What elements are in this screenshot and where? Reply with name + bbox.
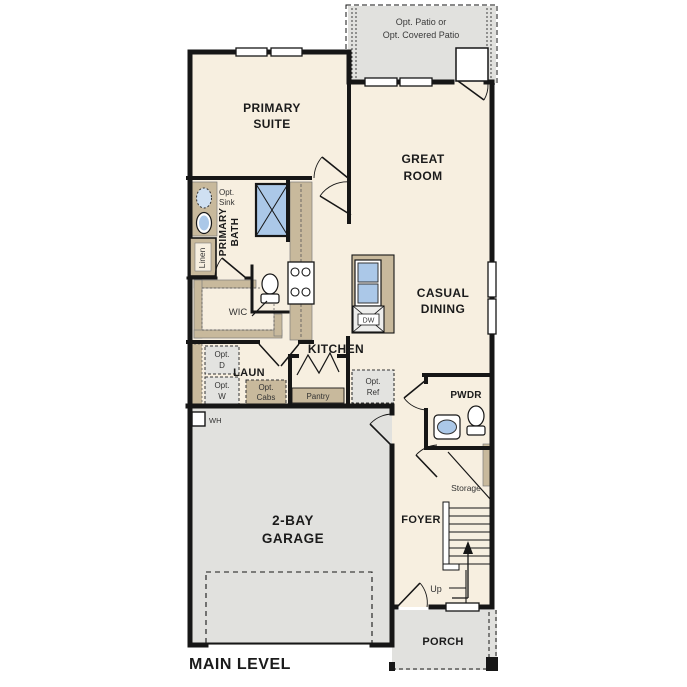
water-heater-label: WH	[209, 416, 222, 425]
window-suite-1	[236, 48, 267, 56]
opt-dryer-label-1: Opt.	[214, 350, 229, 359]
foyer-label: FOYER	[401, 514, 440, 526]
window-greatroom-2	[400, 78, 432, 86]
bath-toilet-bowl	[262, 274, 278, 294]
casual-dining-label-1: CASUAL	[417, 286, 469, 300]
powder-label: PWDR	[450, 390, 482, 401]
burner	[302, 288, 310, 296]
powder-toilet-tank	[467, 426, 485, 435]
porch-post-left	[389, 662, 395, 671]
opt-washer-label-1: Opt.	[214, 381, 229, 390]
opt-ref-label-2: Ref	[367, 388, 380, 397]
window-suite-2	[271, 48, 302, 56]
stair-rail-return	[443, 564, 459, 570]
porch-post-right	[486, 657, 498, 671]
wic-shelf-top	[194, 280, 256, 288]
wic-shelf-right	[274, 314, 282, 336]
opt-sink-label-2: Sink	[219, 198, 236, 207]
patio-label-line2: Opt. Covered Patio	[383, 30, 460, 40]
wic-shelf-left	[194, 280, 202, 338]
powder-toilet-bowl	[468, 406, 484, 426]
optional-sink	[197, 188, 212, 208]
floorplan-drawing: Opt. Patio or Opt. Covered Patio	[0, 0, 687, 687]
kitchen-label: KITCHEN	[308, 342, 364, 356]
wic-shelf-bottom	[194, 330, 282, 338]
window-dining-1	[488, 262, 496, 297]
powder-sink-basin	[438, 420, 457, 434]
range	[288, 262, 314, 304]
opt-dryer-label-2: D	[219, 361, 225, 370]
up-label: Up	[430, 584, 442, 594]
laundry-label: LAUN	[233, 367, 265, 379]
opt-cabs-label-1: Opt.	[258, 383, 273, 392]
opt-ref-label-1: Opt.	[365, 377, 380, 386]
floorplan-page: Opt. Patio or Opt. Covered Patio	[0, 0, 687, 687]
patio-label-line1: Opt. Patio or	[396, 17, 447, 27]
plan-title: MAIN LEVEL	[189, 656, 291, 673]
wic-label: WIC	[229, 307, 248, 318]
bath-toilet-tank	[261, 294, 279, 303]
primary-bath-label-2: BATH	[230, 218, 241, 247]
opt-cabs-label-2: Cabs	[257, 393, 276, 402]
patio-door-pocket	[456, 48, 488, 81]
island-sink-basin-1	[358, 263, 378, 282]
garage-label-1: 2-BAY	[272, 513, 314, 528]
window-greatroom-1	[365, 78, 397, 86]
window-front	[446, 603, 479, 611]
primary-bath-label-1: PRIMARY	[218, 208, 229, 257]
opt-sink-label-1: Opt.	[219, 188, 234, 197]
storage-label: Storage	[451, 483, 481, 493]
porch-label: PORCH	[422, 636, 463, 648]
burner	[302, 268, 310, 276]
great-room-label-2: ROOM	[404, 169, 443, 183]
casual-dining-label-2: DINING	[421, 302, 465, 316]
burner	[291, 288, 299, 296]
opt-ref-box	[352, 370, 394, 403]
island-sink-basin-2	[358, 284, 378, 303]
vanity-sink-basin	[199, 216, 209, 231]
primary-suite-label-2: SUITE	[253, 117, 290, 131]
window-dining-2	[488, 299, 496, 334]
primary-suite-label-1: PRIMARY	[243, 101, 301, 115]
water-heater	[192, 412, 205, 426]
stair-rail	[443, 502, 449, 566]
burner	[291, 268, 299, 276]
great-room-label-1: GREAT	[401, 152, 444, 166]
pantry-label: Pantry	[306, 392, 329, 401]
dishwasher-label: DW	[363, 318, 375, 325]
linen-label: Linen	[197, 247, 207, 268]
garage-label-2: GARAGE	[262, 531, 324, 546]
opt-washer-label-2: W	[218, 392, 226, 401]
